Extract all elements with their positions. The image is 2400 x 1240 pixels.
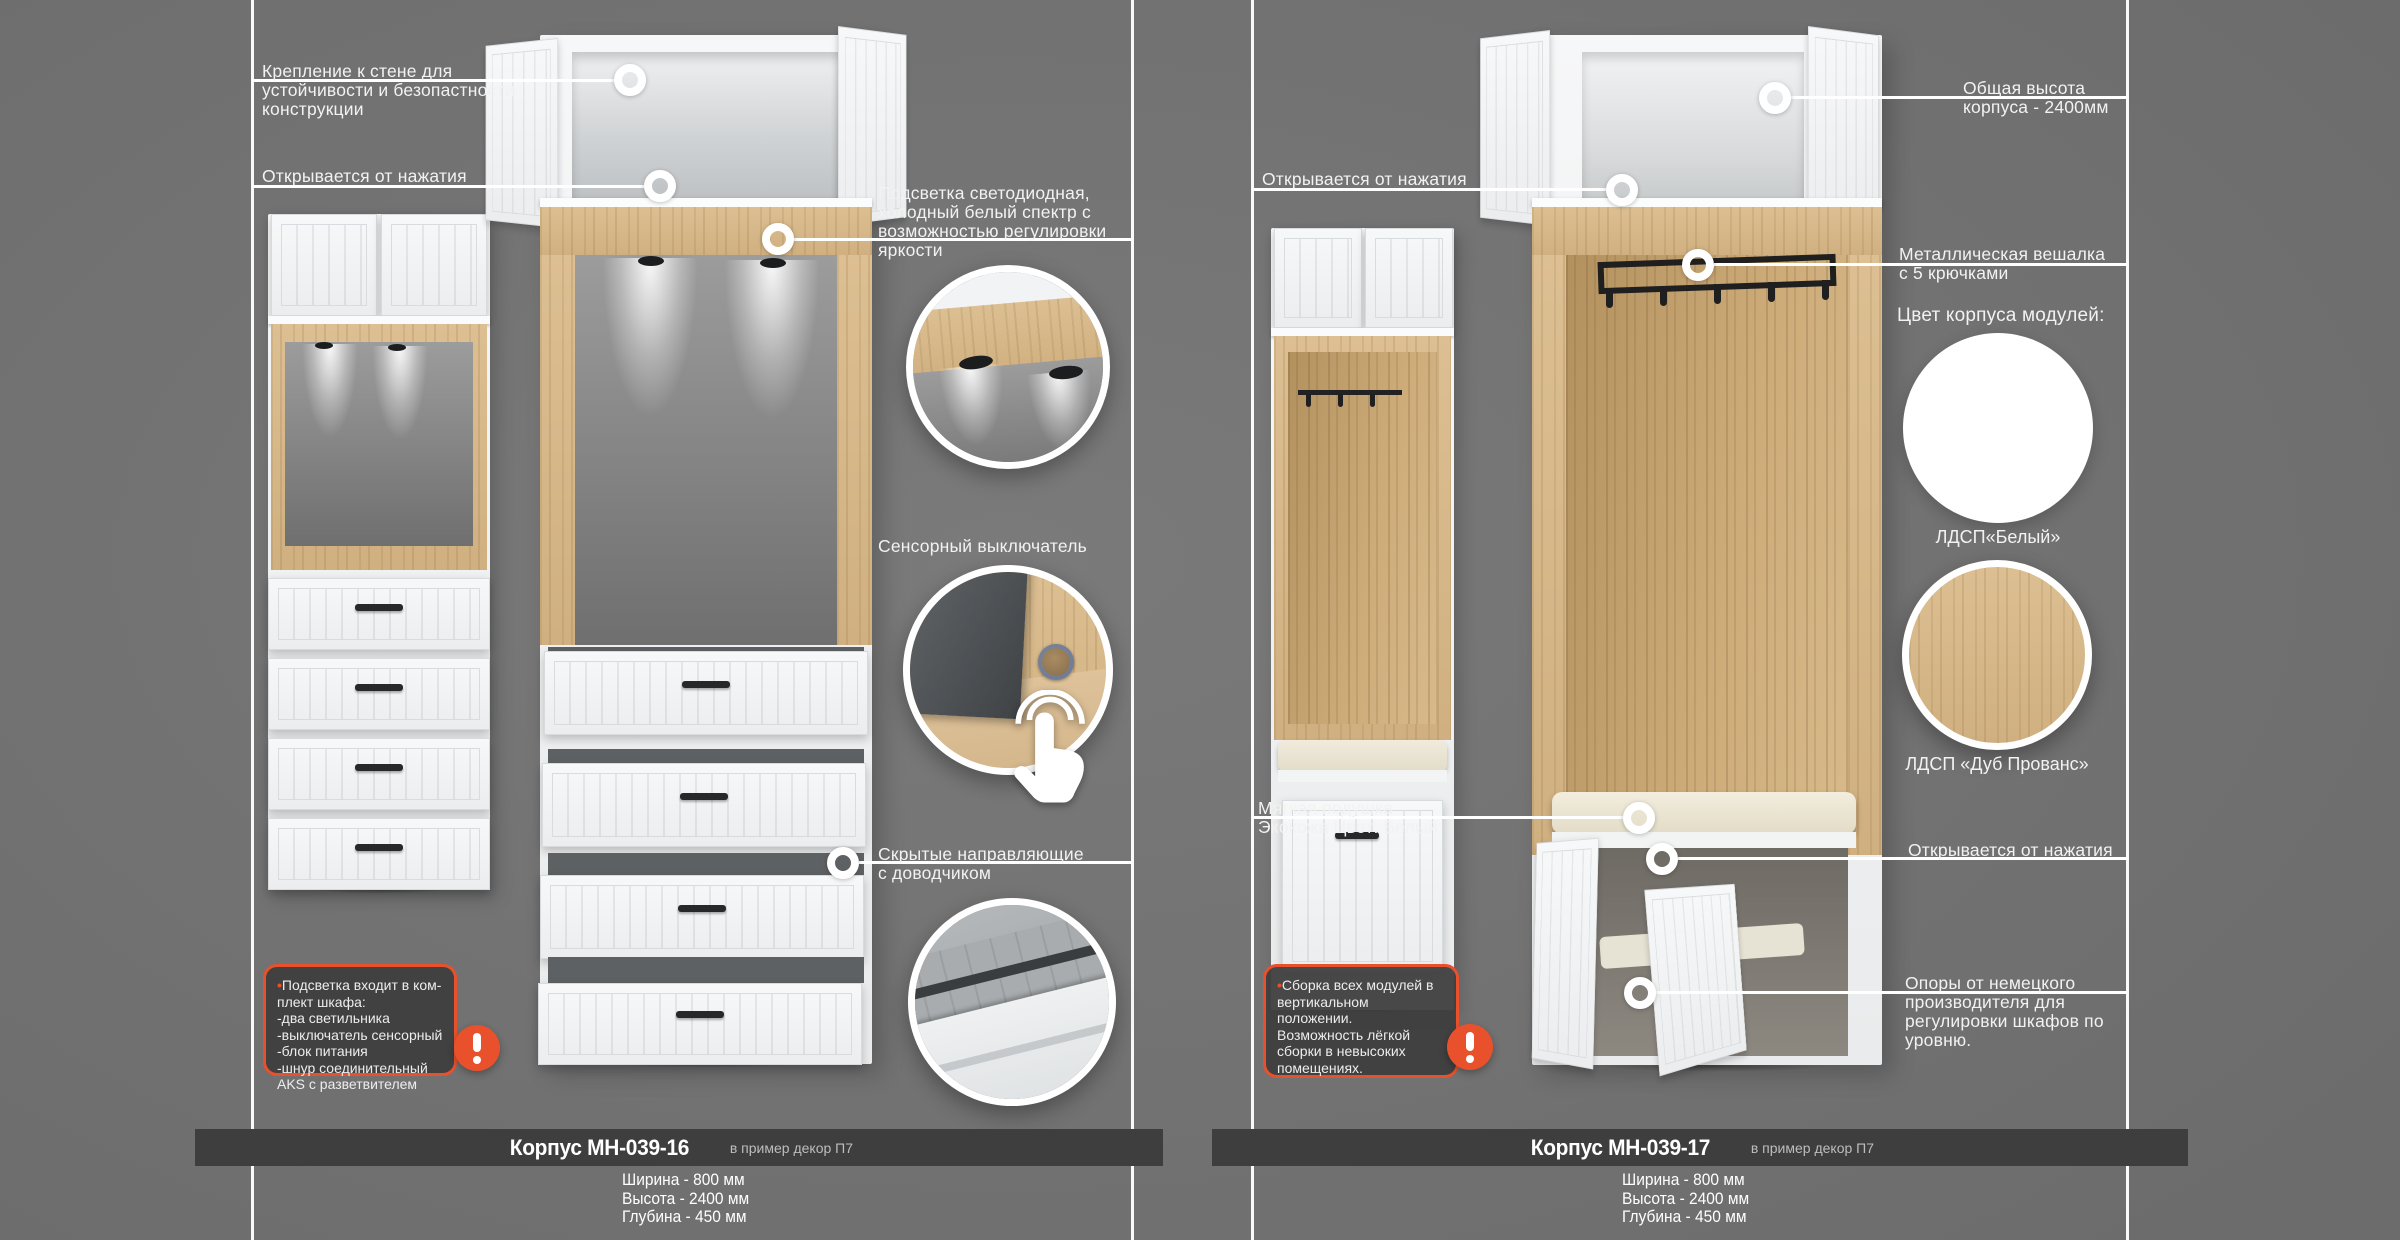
product-subtitle-right: в пример декор П7 (1751, 1140, 1874, 1156)
inset-led-lighting (906, 265, 1110, 469)
small-cabinet-drawer-1 (268, 578, 490, 650)
annotation-sensor: Сенсорный выключатель (878, 537, 1087, 556)
right-large-bottom-door-left-open (1532, 838, 1599, 1070)
right-large-bottom-door-right-open (1644, 884, 1746, 1077)
footer-band-right: Корпус МН-039-17 в пример декор П7 (1212, 1129, 2188, 1166)
annotation-total-height: Общая высотакорпуса - 2400мм (1963, 79, 2109, 117)
marker-feet (1624, 977, 1656, 1009)
furniture-spec-sheet: Крепление к стене дляустойчивости и безо… (0, 0, 2400, 1240)
annotation-cushion: Мягкая подушкаЭкокожа Цвет: Белый (1258, 799, 1438, 837)
large-cabinet-drawer-2 (542, 763, 866, 847)
marker-push-open-top (1606, 174, 1638, 206)
large-cabinet-niche-top-frame (540, 207, 872, 255)
right-small-top-door-left (1274, 228, 1362, 328)
touch-hand-icon (992, 690, 1112, 810)
swatch-oak-label: ЛДСП «Дуб Прованс» (1887, 754, 2107, 775)
annotation-push-open: Открывается от нажатия (262, 167, 467, 186)
note-vertical-assembly: •Сборка всех модулей в вертикальном поло… (1263, 964, 1459, 1078)
marker-push-open (644, 170, 676, 202)
swatches-title: Цвет корпуса модулей: (1897, 306, 2105, 325)
right-large-top-door-left-open (1480, 30, 1550, 226)
swatch-white-label: ЛДСП«Белый» (1903, 527, 2093, 548)
divider-right-page-right (2126, 0, 2129, 1240)
annotation-feet: Опоры от немецкогопроизводителя длярегул… (1905, 974, 2104, 1050)
swatch-oak (1902, 560, 2092, 750)
marker-cushion (1623, 802, 1655, 834)
right-small-top-door-right (1365, 228, 1453, 328)
warning-exclamation-icon (1447, 1024, 1493, 1070)
marker-wall-mount (614, 64, 646, 96)
large-cabinet-drawer-1 (544, 651, 868, 735)
large-cabinet-drawer-3 (540, 875, 864, 959)
marker-push-open-bottom (1646, 843, 1678, 875)
right-small-cushion (1278, 740, 1447, 772)
product-subtitle-left: в пример декор П7 (730, 1140, 853, 1156)
marker-rails (827, 847, 859, 879)
small-cabinet-top-door-left (271, 214, 377, 316)
note-lighting-kit: •Подсветка входит в ком- плект шкафа: -д… (263, 964, 457, 1076)
marker-hanger (1682, 249, 1714, 281)
divider-right-page-left (1251, 0, 1254, 1240)
sensor-button (1038, 644, 1074, 680)
small-cabinet-top-door-right (381, 214, 487, 316)
annotation-led: Подсветка светодиодная,холодный белый сп… (878, 184, 1106, 260)
large-cabinet-drawer-4 (538, 983, 862, 1065)
small-cabinet-drawer-2 (268, 658, 490, 730)
annotation-wall-mount: Крепление к стене дляустойчивости и безо… (262, 62, 515, 119)
right-small-niche (1288, 352, 1437, 724)
right-large-niche (1566, 255, 1848, 855)
swatch-white (1903, 333, 2093, 523)
footer-band-left: Корпус МН-039-16 в пример декор П7 (195, 1129, 1163, 1166)
divider-left-page-right (1131, 0, 1134, 1240)
annotation-rails: Скрытые направляющиес доводчиком (878, 845, 1084, 883)
small-cabinet-drawer-4 (268, 818, 490, 890)
annotation-hanger: Металлическая вешалкас 5 крючками (1899, 245, 2105, 283)
marker-total-height (1759, 82, 1791, 114)
marker-led (762, 223, 794, 255)
large-cabinet-top-opening (572, 52, 840, 198)
annotation-push-open-bottom: Открывается от нажатия (1908, 841, 2113, 860)
dimensions-left: Ширина - 800 мм Высота - 2400 мм Глубина… (622, 1171, 749, 1227)
dimensions-right: Ширина - 800 мм Высота - 2400 мм Глубина… (1622, 1171, 1749, 1227)
warning-exclamation-icon (454, 1025, 500, 1071)
right-large-cushion (1552, 792, 1856, 834)
inset-drawer-rails (908, 898, 1116, 1106)
product-title-right: Корпус МН-039-17 (1531, 1135, 1710, 1161)
annotation-push-open-top: Открывается от нажатия (1262, 170, 1467, 189)
product-title-left: Корпус МН-039-16 (510, 1135, 689, 1161)
small-cabinet-drawer-3 (268, 738, 490, 810)
